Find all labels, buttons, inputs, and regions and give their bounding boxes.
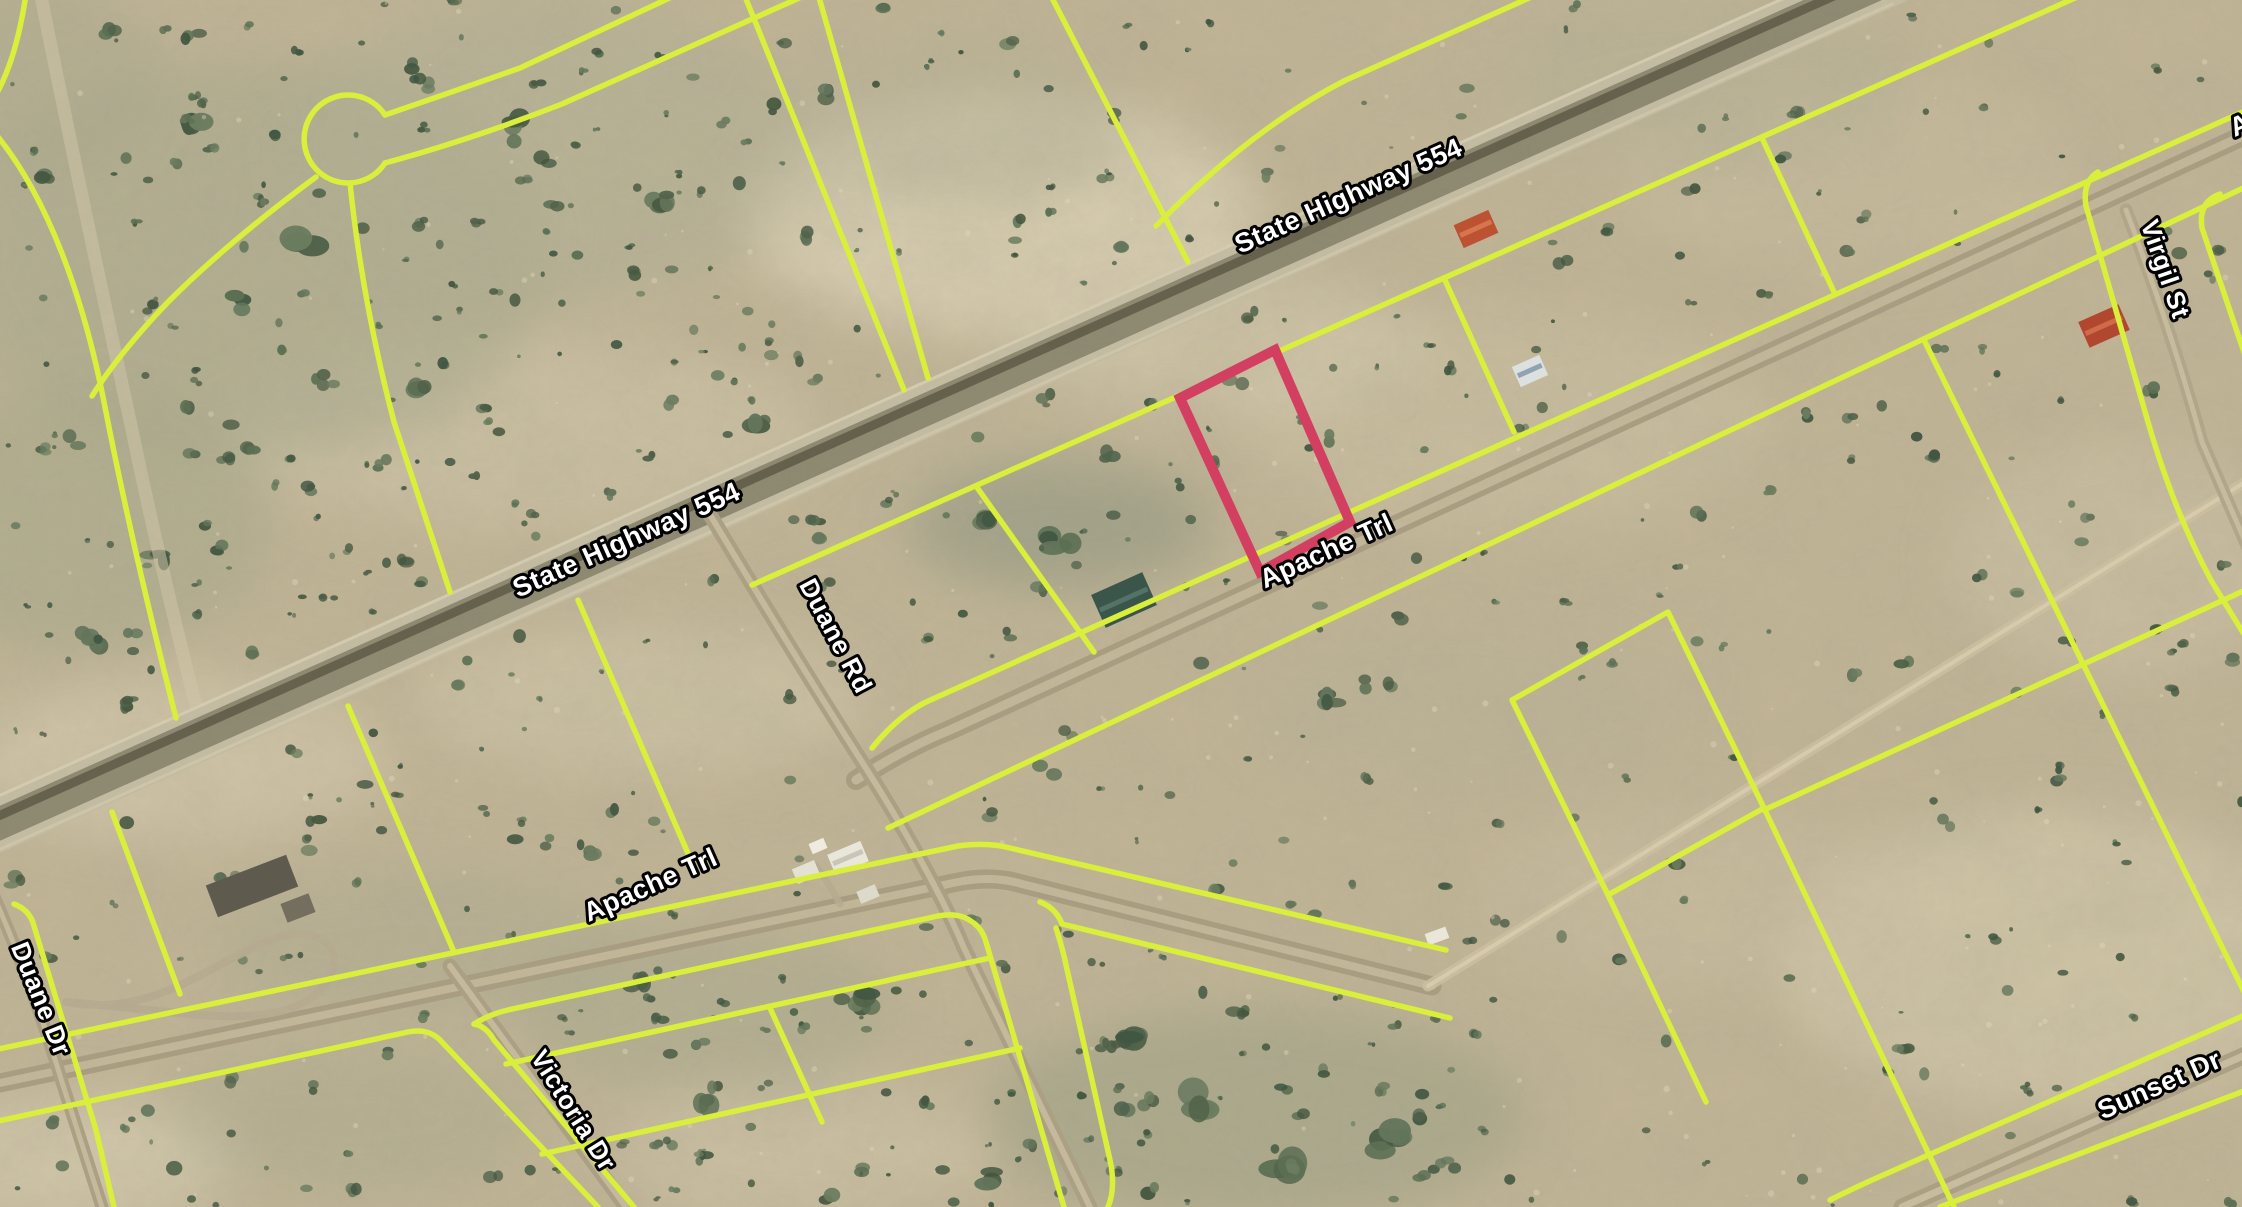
satellite-map-view[interactable]: State Highway 554State Highway 554Apache… [0,0,2242,1207]
satellite-map[interactable]: State Highway 554State Highway 554Apache… [0,0,2242,1207]
